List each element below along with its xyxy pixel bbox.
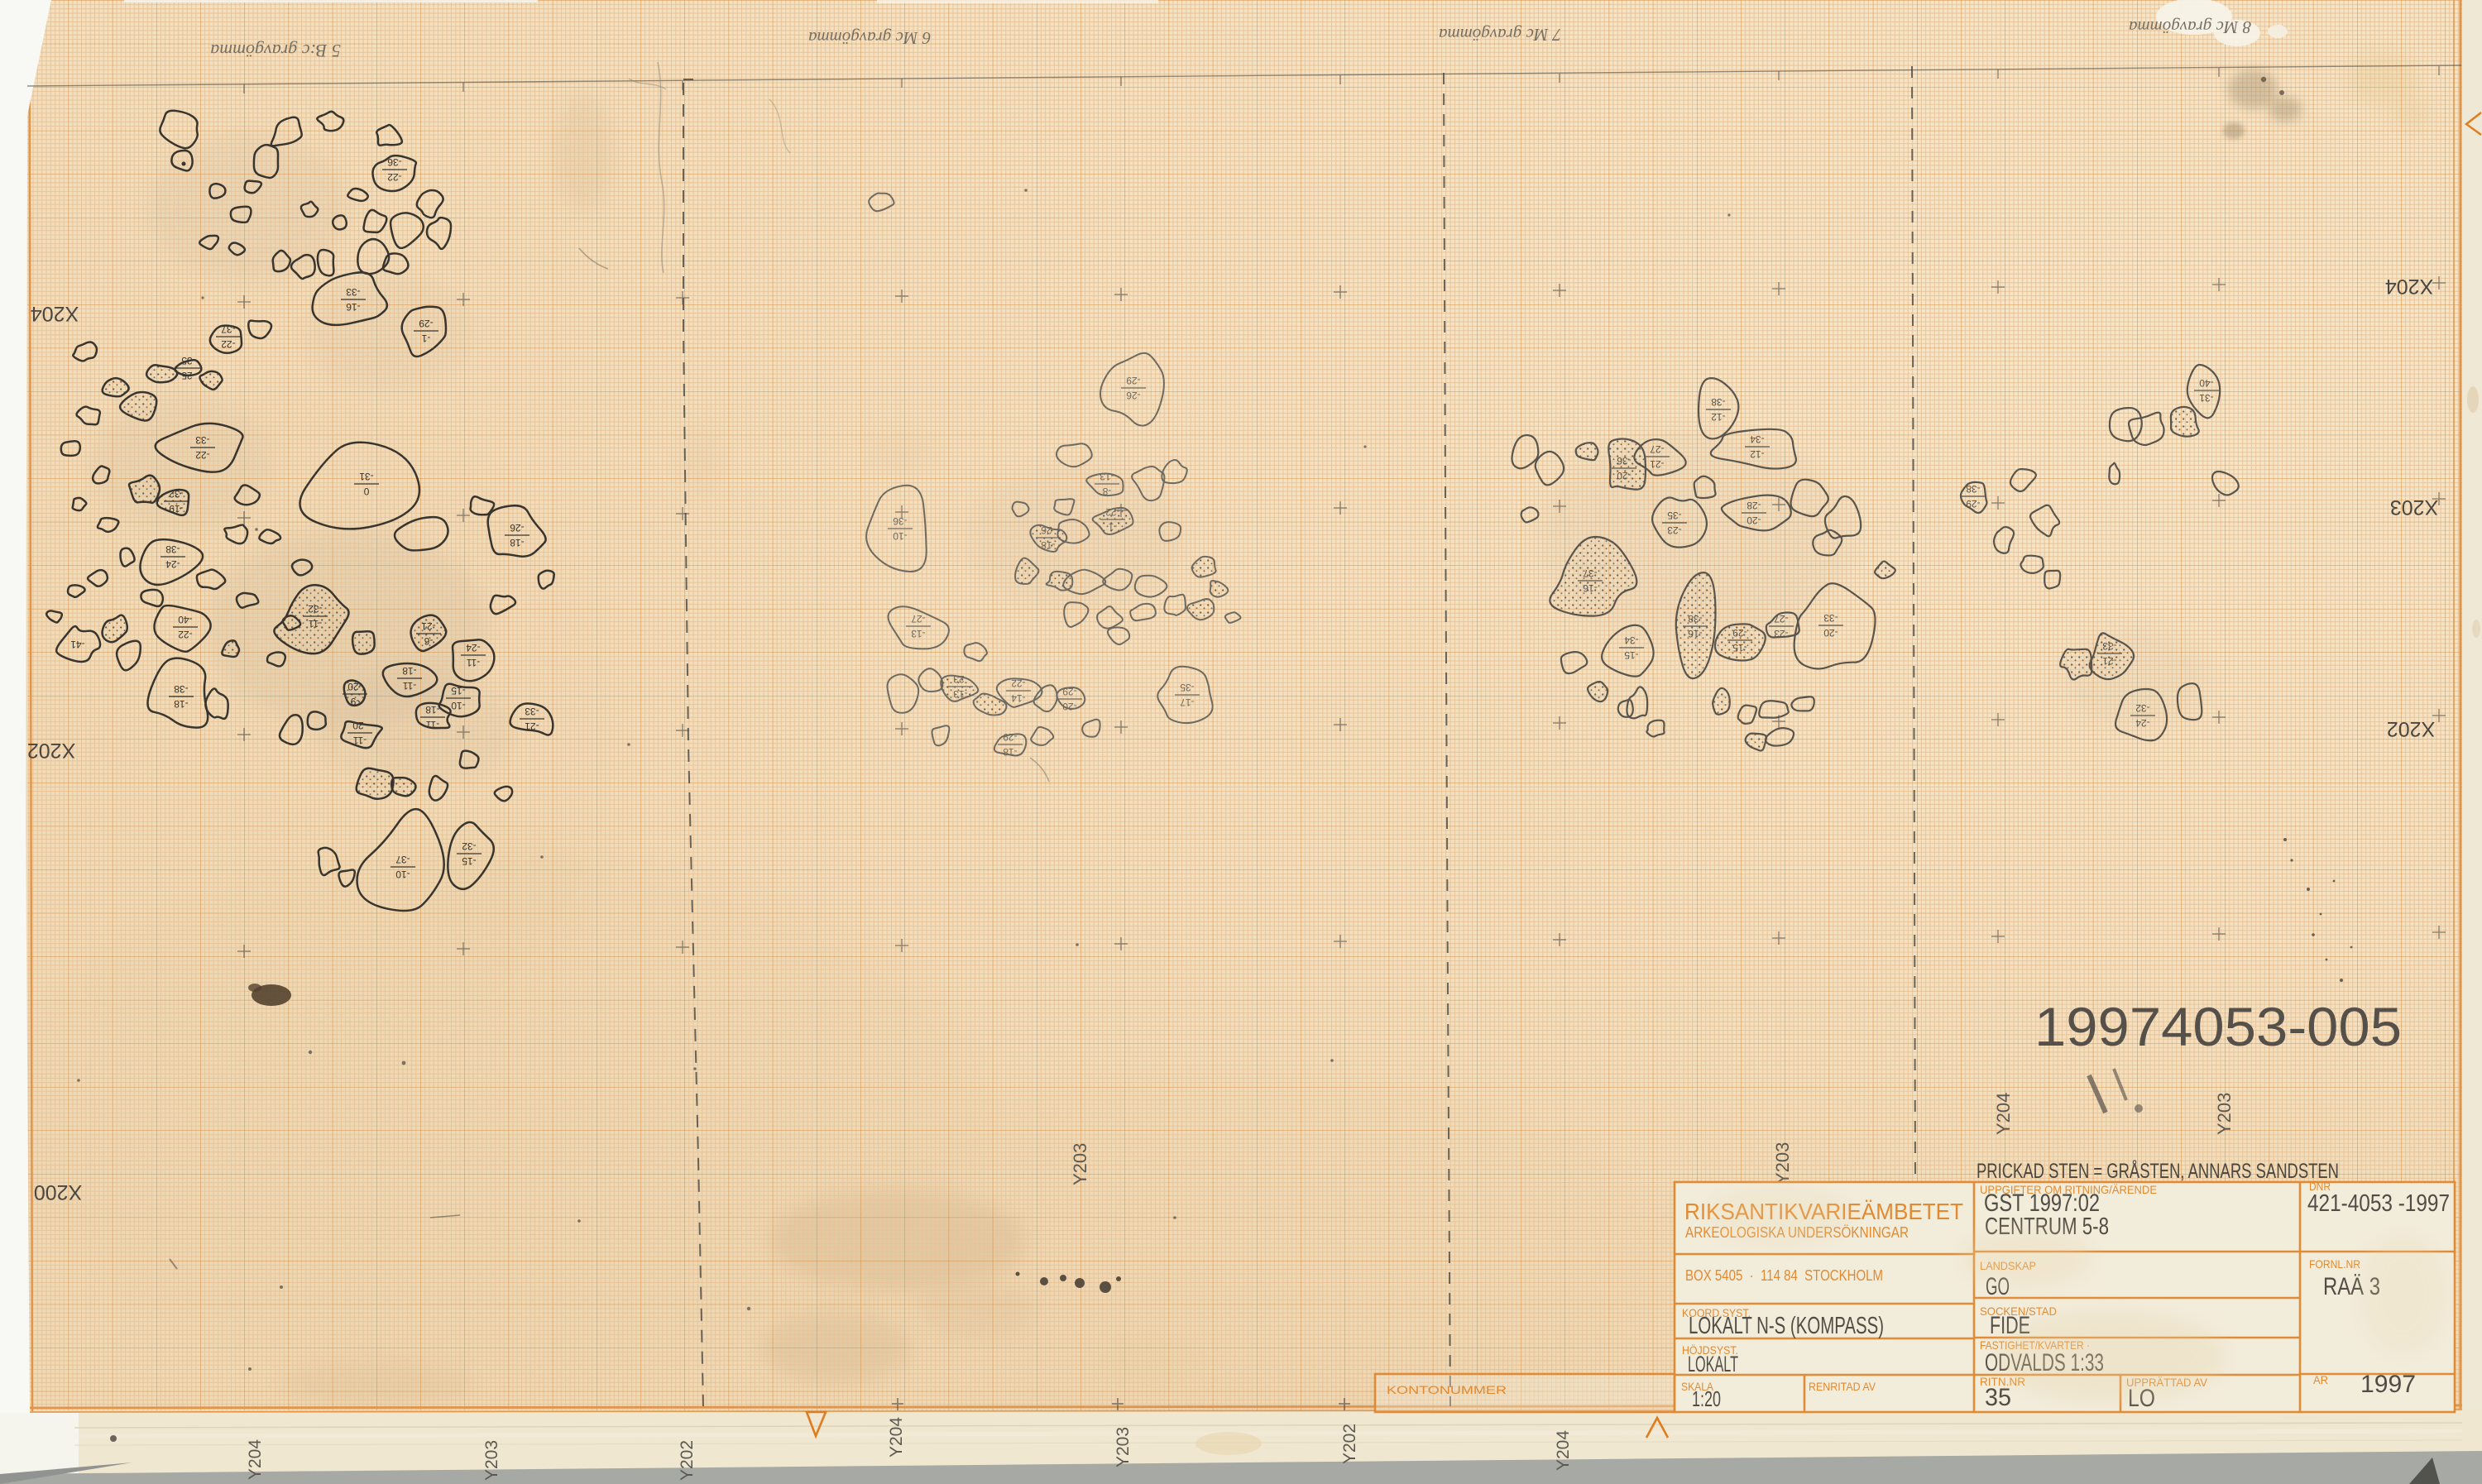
svg-text:-26: -26 [510,522,525,534]
svg-text:-29: -29 [1062,686,1077,697]
svg-text:-38: -38 [1711,396,1726,408]
svg-text:-40: -40 [2199,377,2214,389]
svg-text:-18: -18 [510,537,525,548]
svg-text:-34: -34 [1624,634,1639,646]
svg-text:-29: -29 [1732,627,1747,639]
svg-text:-38: -38 [174,683,189,695]
svg-text:-26: -26 [1126,390,1141,401]
svg-text:X202: X202 [2387,717,2435,740]
svg-text:-35: -35 [181,355,196,366]
svg-text:-21: -21 [1650,458,1665,470]
svg-text:Y202: Y202 [1340,1424,1359,1464]
svg-text:1:20: 1:20 [1692,1386,1721,1411]
svg-text:-20: -20 [1062,701,1077,712]
svg-text:8 Mc gravgömma: 8 Mc gravgömma [2129,17,2251,37]
svg-text:Y204: Y204 [246,1439,265,1480]
svg-text:Y204: Y204 [1554,1430,1573,1471]
svg-text:-10: -10 [893,530,908,542]
svg-text:-8: -8 [1102,486,1111,497]
svg-text:-18: -18 [1041,539,1056,551]
svg-text:-32: -32 [308,603,323,615]
svg-text:-29: -29 [1003,731,1018,743]
svg-text:-18: -18 [425,704,440,716]
svg-text:-12: -12 [1711,411,1726,423]
svg-text:35: 35 [1985,1384,2011,1411]
svg-text:-21: -21 [421,620,436,632]
svg-text:-32: -32 [462,840,477,852]
svg-text:-33: -33 [346,286,361,298]
svg-text:-13: -13 [1100,471,1114,482]
svg-text:X204: X204 [31,302,79,325]
svg-text:-23: -23 [953,673,968,685]
svg-text:-20: -20 [347,681,362,692]
svg-text:-21: -21 [2102,655,2117,667]
svg-text:-17: -17 [1180,697,1195,708]
svg-text:-32: -32 [2135,702,2150,714]
svg-text:-12: -12 [1750,448,1765,460]
svg-text:-22: -22 [1105,506,1120,518]
svg-text:FORNL.NR: FORNL.NR [2309,1257,2360,1271]
svg-text:-22: -22 [178,629,193,640]
svg-text:-29: -29 [419,318,434,329]
svg-text:X202: X202 [27,739,75,762]
svg-text:-22: -22 [221,338,236,350]
svg-text:-15: -15 [451,685,466,697]
svg-text:-6: -6 [424,635,433,647]
svg-text:-15: -15 [1732,642,1747,653]
svg-text:-29: -29 [1126,375,1141,386]
svg-text:-38: -38 [165,543,180,555]
svg-text:-37: -37 [1583,567,1598,579]
svg-text:-37: -37 [221,323,236,335]
svg-text:-38: -38 [1966,483,1981,495]
svg-text:Y203: Y203 [1772,1142,1793,1185]
svg-text:-16: -16 [1688,628,1703,639]
svg-text:-36: -36 [893,515,908,527]
svg-text:-33: -33 [1823,612,1838,624]
svg-text:-25: -25 [181,370,196,381]
svg-text:-36: -36 [387,156,402,168]
svg-text:-18: -18 [402,665,417,677]
svg-text:-18: -18 [1003,746,1018,758]
svg-text:Y203: Y203 [482,1440,501,1481]
svg-text:-20: -20 [1617,470,1632,481]
svg-text:-28: -28 [1747,500,1761,511]
svg-text:RENRITAD AV: RENRITAD AV [1809,1380,1876,1393]
svg-text:Y202: Y202 [678,1440,697,1481]
svg-text:AR: AR [2313,1373,2328,1386]
svg-text:-10: -10 [395,869,410,880]
svg-text:X203: X203 [2390,495,2438,519]
svg-text:-33: -33 [525,706,539,717]
svg-text:-34: -34 [1750,433,1765,445]
svg-text:-15: -15 [462,855,477,867]
svg-text:-20: -20 [1747,515,1761,526]
svg-text:-22: -22 [387,171,402,183]
svg-text:-24: -24 [2135,717,2150,729]
svg-text:X204: X204 [2385,275,2433,298]
svg-text:-37: -37 [395,854,410,865]
svg-text:LOKALT N-S (KOMPASS): LOKALT N-S (KOMPASS) [1689,1313,1884,1339]
svg-text:-20: -20 [1823,627,1838,639]
svg-text:-1: -1 [421,333,430,344]
svg-text:-11: -11 [308,618,322,630]
svg-text:-29: -29 [1966,498,1981,510]
svg-text:-36: -36 [1617,455,1632,467]
svg-text:-27: -27 [1650,443,1665,455]
svg-text:-32: -32 [169,488,184,500]
svg-text:5 B:c gravgömma: 5 B:c gravgömma [210,41,341,61]
svg-text:-31: -31 [2199,392,2214,404]
svg-text:-13: -13 [911,628,926,639]
svg-text:-10: -10 [451,700,466,711]
svg-text:-11: -11 [425,719,439,730]
svg-text:-38: -38 [1688,613,1703,625]
svg-text:6 Mc gravgömma: 6 Mc gravgömma [808,28,931,48]
svg-text:-11: -11 [466,657,480,668]
svg-text:421-4053 -1997: 421-4053 -1997 [2307,1190,2450,1217]
svg-text:-23: -23 [1667,524,1682,536]
svg-text:-26: -26 [1041,524,1056,536]
svg-text:-24: -24 [165,558,180,570]
svg-text:Y203: Y203 [1114,1427,1133,1467]
svg-text:Y203: Y203 [1070,1143,1090,1185]
svg-text:LOKALT: LOKALT [1688,1352,1738,1376]
svg-text:-18: -18 [174,698,189,710]
svg-text:1997: 1997 [2360,1371,2416,1398]
svg-text:Y203: Y203 [2214,1093,2235,1135]
svg-text:7 Mc gravgömma: 7 Mc gravgömma [1439,25,1561,45]
svg-text:Y204: Y204 [1993,1093,2014,1135]
svg-text:-21: -21 [525,720,539,732]
svg-text:-27: -27 [911,613,926,625]
svg-text:-33: -33 [195,434,210,446]
svg-text:-31: -31 [359,471,374,482]
svg-text:-11: -11 [402,680,416,692]
svg-text:-23: -23 [1774,628,1789,639]
svg-text:-20: -20 [352,720,367,731]
svg-text:-22: -22 [195,449,210,461]
svg-text:-14: -14 [1011,692,1026,704]
svg-text:-35: -35 [1180,682,1195,693]
svg-text:-15: -15 [1624,649,1639,661]
svg-text:-27: -27 [1774,613,1789,625]
svg-text:-16: -16 [1583,582,1598,594]
svg-text:-40: -40 [178,614,193,625]
svg-text:BOX 5405 · 114 84 STOCKHOLM: BOX 5405 · 114 84 STOCKHOLM [1685,1267,1883,1284]
svg-text:-13: -13 [953,688,968,700]
svg-text:-9: -9 [350,696,359,707]
svg-text:-24: -24 [466,642,481,653]
svg-text:-35: -35 [1667,510,1682,521]
svg-text:-1: -1 [1108,521,1117,533]
svg-text:0: 0 [363,486,369,497]
svg-text:-41: -41 [70,639,85,650]
svg-text:KONTONUMMER: KONTONUMMER [1387,1383,1507,1396]
svg-text:19974053-005: 19974053-005 [2034,996,2402,1057]
svg-text:-22: -22 [1011,677,1026,689]
svg-text:X200: X200 [34,1180,82,1204]
svg-text:PRICKAD STEN = GRÅSTEN, ANNARS: PRICKAD STEN = GRÅSTEN, ANNARS SANDSTEN [1976,1158,2339,1183]
svg-text:-11: -11 [352,735,367,746]
svg-text:Y204: Y204 [887,1417,906,1458]
svg-text:-33: -33 [2102,640,2117,652]
svg-text:-16: -16 [346,301,361,313]
svg-text:-19: -19 [169,503,184,515]
